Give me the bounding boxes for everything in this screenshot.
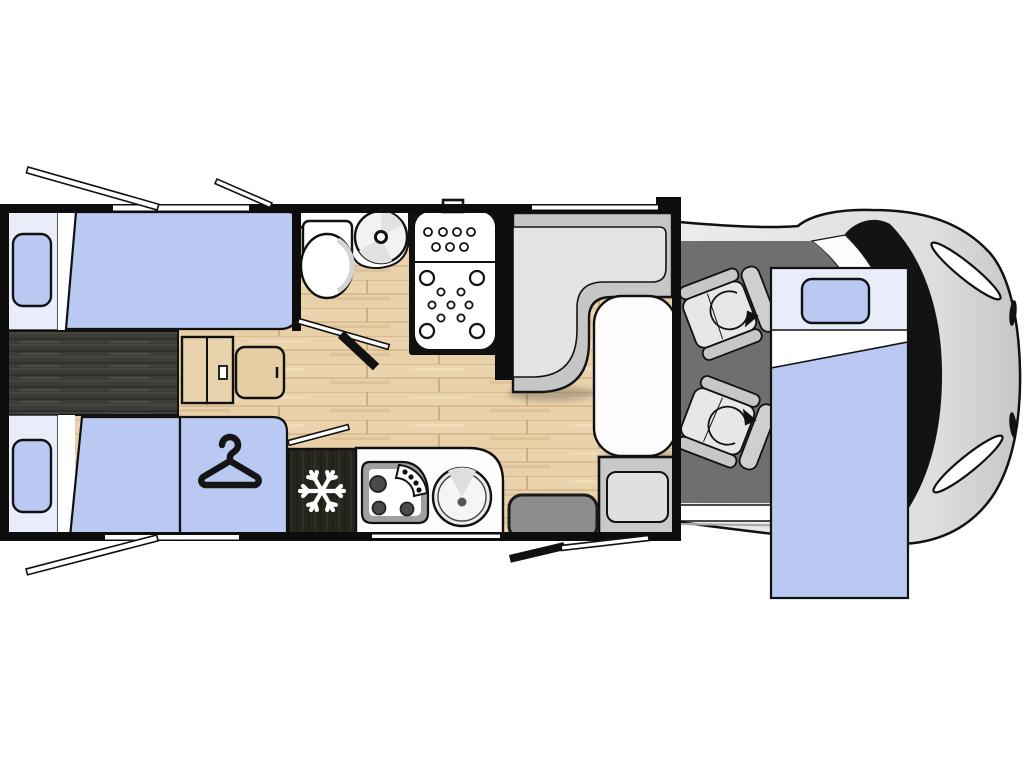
burner <box>373 502 386 515</box>
twin-bed-top <box>66 212 297 329</box>
window-slit <box>372 535 500 539</box>
pillow <box>13 234 51 306</box>
pillow <box>13 440 51 512</box>
dropdown-bed <box>771 268 908 598</box>
dropdown-bed-blanket <box>771 342 908 598</box>
window-slit <box>532 206 658 210</box>
bathroom-partition <box>292 204 301 331</box>
open-window-bar <box>215 179 272 208</box>
basin-drain <box>376 232 387 243</box>
step-handle <box>219 366 227 379</box>
dinette-table <box>594 296 676 456</box>
window-slit <box>113 206 249 211</box>
entry-bench-seat <box>599 457 676 539</box>
floorplan-canvas <box>0 0 1024 768</box>
drain <box>458 498 467 507</box>
window-slit <box>105 535 239 540</box>
pillow <box>802 279 869 323</box>
entry-door-leaf <box>509 542 565 563</box>
habitation-area <box>8 200 682 539</box>
twin-bed-bottom <box>70 417 180 537</box>
shower-cubicle <box>409 200 501 355</box>
open-window-bar <box>26 167 158 210</box>
burner <box>370 476 386 492</box>
kitchen-sink <box>433 467 491 526</box>
burner <box>401 503 414 516</box>
shower-partition <box>495 204 513 380</box>
center-chest <box>8 331 178 415</box>
hob <box>362 462 428 523</box>
